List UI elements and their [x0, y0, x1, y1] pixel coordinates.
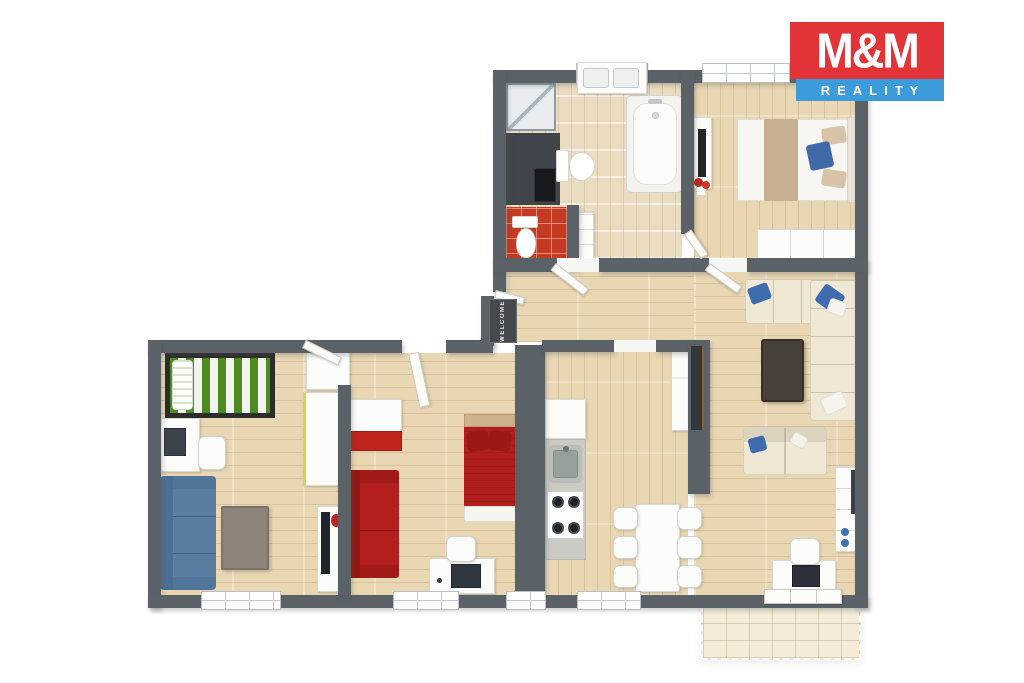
- kitchen-window: [577, 591, 641, 610]
- wall-bath-bottom-left: [493, 258, 557, 272]
- floorplan-render: WELCOME M&M REALITY: [0, 0, 1024, 683]
- bedroom2-mouse: [437, 578, 442, 583]
- red-sofa: [349, 470, 399, 578]
- kids-computer: [164, 428, 186, 456]
- dining-chair: [677, 507, 702, 530]
- shelf-blue-item-1: [841, 528, 849, 536]
- kids-chair: [198, 436, 226, 470]
- kids-bed-pillow: [172, 360, 193, 410]
- dining-chair: [613, 507, 638, 530]
- terrace-floor: [701, 606, 861, 660]
- wc-toilet-tank: [512, 216, 538, 228]
- red-bed-base: [464, 506, 516, 522]
- bed-pillow-bottom: [821, 168, 847, 188]
- stove-burner: [568, 522, 580, 534]
- wall-bath-bedroom-divider: [681, 70, 694, 234]
- kids-wardrobe: [303, 392, 343, 486]
- sink-basin-right: [613, 68, 639, 88]
- dark-door-leaf: [691, 346, 704, 430]
- wall-kids-divider: [338, 385, 351, 595]
- red-bed-headboard: [464, 414, 516, 427]
- bedroom-tv: [698, 129, 706, 177]
- brand-logo-top: M&M: [790, 22, 944, 79]
- coffee-table: [761, 339, 804, 402]
- sink-basin-left: [583, 68, 609, 88]
- kids-room-window: [201, 591, 281, 610]
- kitchen-door-threshold: [614, 340, 656, 352]
- stove-burner: [552, 496, 564, 508]
- welcome-doormat: WELCOME: [489, 299, 517, 343]
- wall-left-outer: [148, 340, 161, 608]
- bedroom2-computer: [451, 564, 481, 588]
- dining-table: [635, 504, 680, 592]
- shower: [506, 83, 556, 131]
- wall-leftwing-top-b: [446, 340, 493, 353]
- wc-toilet-bowl: [516, 228, 536, 258]
- bedroom2-window: [393, 591, 459, 610]
- kids-coffee-table: [221, 506, 269, 570]
- doormat-label: WELCOME: [500, 300, 506, 342]
- kitchen-faucet: [563, 446, 569, 452]
- brand-logo-text: M&M: [816, 22, 917, 79]
- toilet-tank: [556, 150, 569, 182]
- bathtub-faucet: [648, 99, 662, 104]
- stove-burner: [552, 522, 564, 534]
- bathtub-drain: [652, 112, 659, 119]
- gas-stove: [547, 491, 584, 539]
- living-monitor: [792, 565, 820, 587]
- corridor-window: [506, 591, 546, 610]
- dining-chair: [677, 536, 702, 559]
- dining-chair: [613, 536, 638, 559]
- wall-bed2-kitchen-divider: [515, 345, 545, 595]
- flower-decor-bloom2: [702, 181, 710, 189]
- wall-bath-bottom-right: [599, 258, 695, 272]
- stove-burner: [568, 496, 580, 508]
- wall-kitchen-top-a: [542, 340, 614, 352]
- wall-bedroom-bottom: [747, 258, 868, 272]
- bed-pillow-blue: [806, 141, 835, 171]
- terrace-door: [764, 589, 842, 604]
- wall-right-outer: [855, 70, 868, 608]
- washing-machine: [534, 168, 556, 202]
- dining-chair: [677, 565, 702, 588]
- kitchen-sink-basin: [553, 450, 578, 478]
- brand-banner-text: REALITY: [815, 83, 926, 98]
- hallway-floor: [506, 272, 695, 342]
- bed-blanket: [764, 119, 798, 201]
- kids-blue-sofa: [160, 476, 216, 590]
- kids-tv: [321, 512, 330, 574]
- kitchen-upper-cabinet: [545, 399, 586, 439]
- wall-leftwing-top-a: [148, 340, 402, 353]
- red-bed-pillow-2: [488, 430, 513, 453]
- bedroom-top-window: [702, 63, 790, 83]
- brand-logo-banner: REALITY: [796, 79, 944, 101]
- bedroom2-chair: [446, 536, 476, 562]
- bedroom2-wardrobe-red: [346, 431, 402, 451]
- dining-chair: [613, 565, 638, 588]
- living-office-chair: [790, 538, 820, 565]
- shelf-blue-item-2: [841, 539, 849, 547]
- bedroom2-wardrobe: [346, 399, 402, 433]
- red-bed-pillow-1: [466, 430, 491, 453]
